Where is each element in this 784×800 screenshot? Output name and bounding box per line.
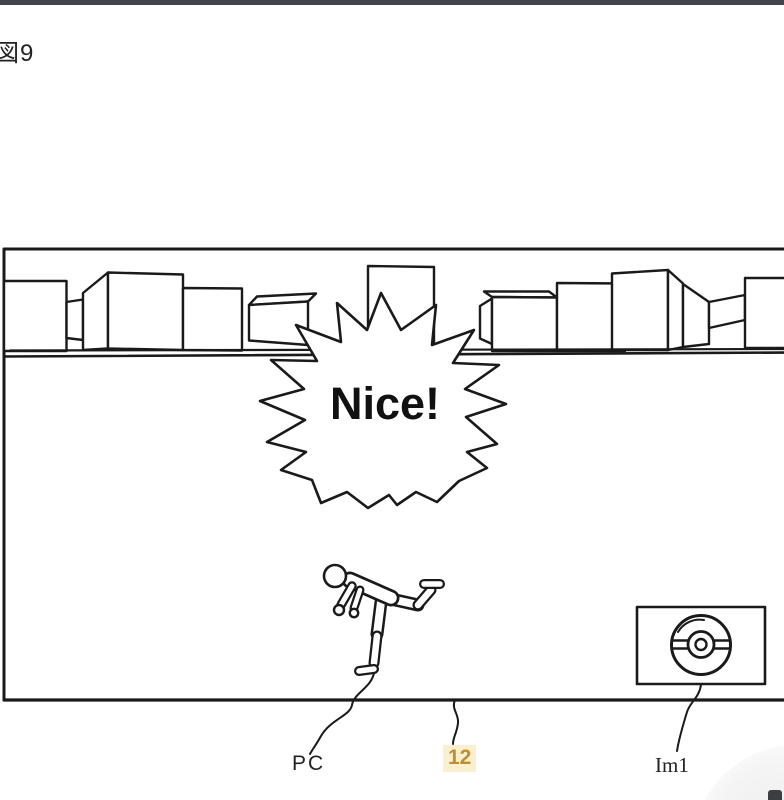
speech-bubble-text: Nice!: [318, 378, 452, 430]
label-pc: PC: [292, 752, 325, 776]
label-im1: Im1: [655, 753, 689, 778]
figure-head: [324, 565, 346, 587]
patent-page: 図9: [0, 0, 784, 800]
corner-mark: [768, 790, 782, 800]
leader-line-12: [453, 700, 458, 744]
captured-image-thumbnail: [637, 607, 765, 684]
player-character-figure: [324, 565, 440, 671]
leader-line-pc: [310, 673, 374, 754]
leader-line-im1: [677, 685, 701, 751]
label-12-highlighted: 12: [443, 745, 476, 772]
pokeball-icon: [672, 616, 731, 675]
